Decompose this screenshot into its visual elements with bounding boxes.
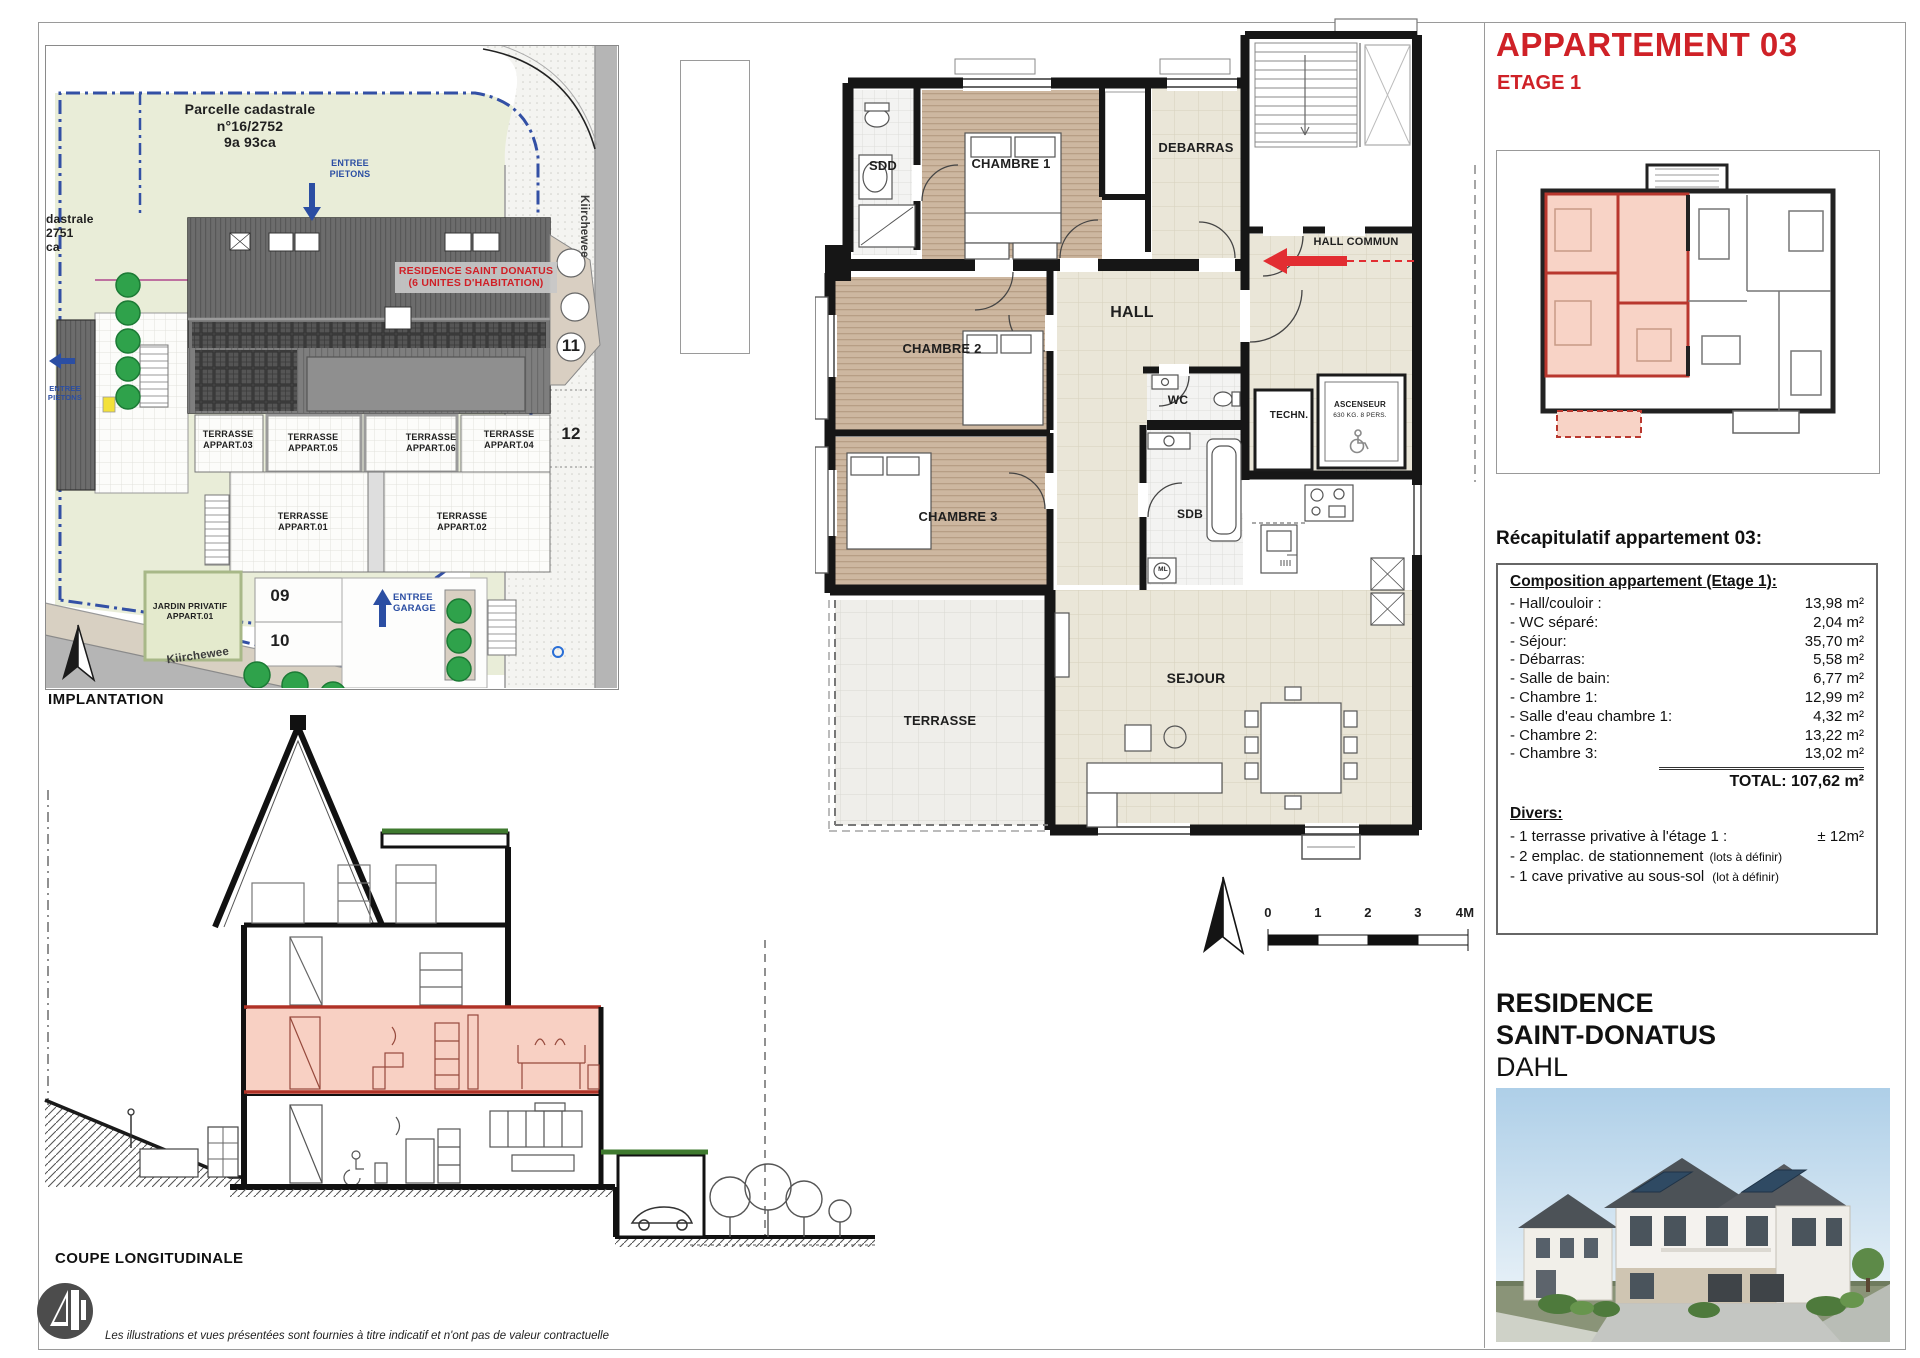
mini-plan-drawing (1497, 151, 1877, 471)
row-value: 35,70 m² (1805, 633, 1864, 652)
terrace-label-01: TERRASSE APPART.01 (268, 511, 338, 532)
total-area: TOTAL: 107,62 m² (1659, 767, 1864, 791)
room-label-hall: HALL (1092, 304, 1172, 323)
building-name-label: RESIDENCE SAINT DONATUS (6 UNITES D'HABI… (395, 262, 557, 293)
scale-tick-3: 3 (1408, 905, 1428, 920)
composition-title: Composition appartement (Etage 1): (1510, 573, 1864, 591)
terrace-label-03: TERRASSE APPART.03 (193, 429, 263, 450)
street-label-vertical: Kiirchewee (576, 195, 590, 285)
row-value: 13,22 m² (1805, 727, 1864, 746)
elevator-capacity-label: 630 KG. 8 PERS. (1320, 412, 1400, 420)
composition-row: - Chambre 1:12,99 m² (1510, 689, 1864, 708)
room-label-terrasse: TERRASSE (890, 713, 990, 728)
room-label-wc: WC (1158, 393, 1198, 407)
room-label-ascenseur: ASCENSEUR (1320, 400, 1400, 409)
parking-number-09: 09 (264, 586, 296, 606)
row-value: 2,04 m² (1813, 614, 1864, 633)
a4-logo (34, 1278, 98, 1344)
section-drawing (40, 715, 880, 1250)
row-label: - Salle de bain: (1510, 670, 1610, 689)
floor-subtitle: ETAGE 1 (1497, 72, 1581, 95)
wheelchair-icon (1345, 428, 1373, 456)
render-image (1496, 1088, 1890, 1342)
row-value: 5,58 m² (1813, 651, 1864, 670)
row-value: 13,02 m² (1805, 745, 1864, 764)
room-label-sejour: SEJOUR (1146, 670, 1246, 687)
parking-number-12: 12 (555, 424, 587, 444)
row-label: - Hall/couloir : (1510, 595, 1602, 614)
composition-row: - WC séparé:2,04 m² (1510, 614, 1864, 633)
residence-name-line1: RESIDENCE (1496, 988, 1654, 1019)
room-label-chambre1: CHAMBRE 1 (951, 156, 1071, 171)
row-note: (lot à définir) (1712, 867, 1779, 887)
techn-room (1255, 390, 1312, 470)
parcel-label-left: dastrale 2751 ca (46, 212, 104, 254)
apartment-title: APPARTEMENT 03 (1496, 26, 1798, 64)
row-label: - 1 cave privative au sous-sol (1510, 867, 1704, 887)
divers-row: - 1 terrasse privative à l'étage 1 :± 12… (1510, 827, 1864, 847)
divers-row: - 1 cave privative au sous-sol(lot à déf… (1510, 867, 1864, 887)
parking-number-11: 11 (555, 336, 587, 356)
north-arrow-plan-icon (1203, 877, 1243, 953)
highlighted-floor (244, 1007, 601, 1092)
row-label: - 1 terrasse privative à l'étage 1 : (1510, 827, 1727, 847)
terrace-label-02: TERRASSE APPART.02 (427, 511, 497, 532)
residence-name-line2: SAINT-DONATUS (1496, 1020, 1716, 1051)
row-label: - Chambre 3: (1510, 745, 1598, 764)
row-value: ± 12m² (1817, 827, 1864, 847)
terrace-label-06: TERRASSE APPART.06 (396, 432, 466, 453)
scale-tick-1: 1 (1308, 905, 1328, 920)
composition-box: Composition appartement (Etage 1): - Hal… (1496, 563, 1878, 935)
row-label: - Chambre 2: (1510, 727, 1598, 746)
terrace-label-04: TERRASSE APPART.04 (474, 429, 544, 450)
row-label: - 2 emplac. de stationnement (1510, 847, 1703, 867)
row-value: 4,32 m² (1813, 708, 1864, 727)
row-value: 6,77 m² (1813, 670, 1864, 689)
composition-row: - Hall/couloir :13,98 m² (1510, 595, 1864, 614)
plan-sheet: Parcelle cadastrale n°16/2752 9a 93ca da… (0, 0, 1920, 1358)
composition-row: - Salle d'eau chambre 1:4,32 m² (1510, 708, 1864, 727)
appliance-label-ml: ML (1150, 566, 1176, 574)
scale-tick-0: 0 (1258, 905, 1278, 920)
room-label-sdb: SDB (1165, 507, 1215, 521)
row-label: - Chambre 1: (1510, 689, 1598, 708)
row-label: - WC séparé: (1510, 614, 1598, 633)
residence-location: DAHL (1496, 1052, 1568, 1083)
pedestrian-entrance-left-label: ENTREE PIETONS (44, 385, 86, 403)
floor-plan-drawing (815, 15, 1480, 955)
wall-patch (825, 245, 851, 281)
section-caption: COUPE LONGITUDINALE (55, 1250, 243, 1267)
divers-title: Divers: (1510, 805, 1864, 823)
scale-tick-4m: 4M (1448, 905, 1482, 920)
room-label-chambre3: CHAMBRE 3 (898, 509, 1018, 524)
composition-row: - Débarras:5,58 m² (1510, 651, 1864, 670)
parking-number-10: 10 (264, 631, 296, 651)
garage-entrance-label: ENTREE GARAGE (393, 592, 455, 614)
room-label-chambre2: CHAMBRE 2 (882, 341, 1002, 356)
room-label-sdd: SDD (853, 158, 913, 173)
room-label-techn: TECHN. (1258, 410, 1320, 422)
parcel-label: Parcelle cadastrale n°16/2752 9a 93ca (135, 101, 365, 151)
disclaimer-text: Les illustrations et vues présentées son… (105, 1330, 665, 1342)
pedestrian-entrance-label: ENTREE PIETONS (318, 158, 382, 179)
site-plan-caption: IMPLANTATION (48, 691, 164, 708)
row-value: 12,99 m² (1805, 689, 1864, 708)
composition-row: - Chambre 3:13,02 m² (1510, 745, 1864, 764)
row-note: (lots à définir) (1709, 847, 1782, 867)
adjacent-structure-outline (680, 60, 750, 354)
composition-row: - Salle de bain:6,77 m² (1510, 670, 1864, 689)
room-label-debarras: DEBARRAS (1136, 140, 1256, 155)
garden-label: JARDIN PRIVATIF APPART.01 (150, 601, 230, 621)
recap-heading: Récapitulatif appartement 03: (1496, 528, 1762, 550)
room-label-hall-commun: HALL COMMUN (1295, 236, 1417, 249)
composition-row: - Chambre 2:13,22 m² (1510, 727, 1864, 746)
panel-divider (1484, 22, 1485, 1348)
row-label: - Séjour: (1510, 633, 1567, 652)
composition-row: - Séjour:35,70 m² (1510, 633, 1864, 652)
divers-row: - 2 emplac. de stationnement(lots à défi… (1510, 847, 1864, 867)
row-label: - Débarras: (1510, 651, 1585, 670)
scale-tick-2: 2 (1358, 905, 1378, 920)
scale-bar (1268, 929, 1468, 951)
terrace-label-05: TERRASSE APPART.05 (278, 432, 348, 453)
row-label: - Salle d'eau chambre 1: (1510, 708, 1672, 727)
row-value: 13,98 m² (1805, 595, 1864, 614)
